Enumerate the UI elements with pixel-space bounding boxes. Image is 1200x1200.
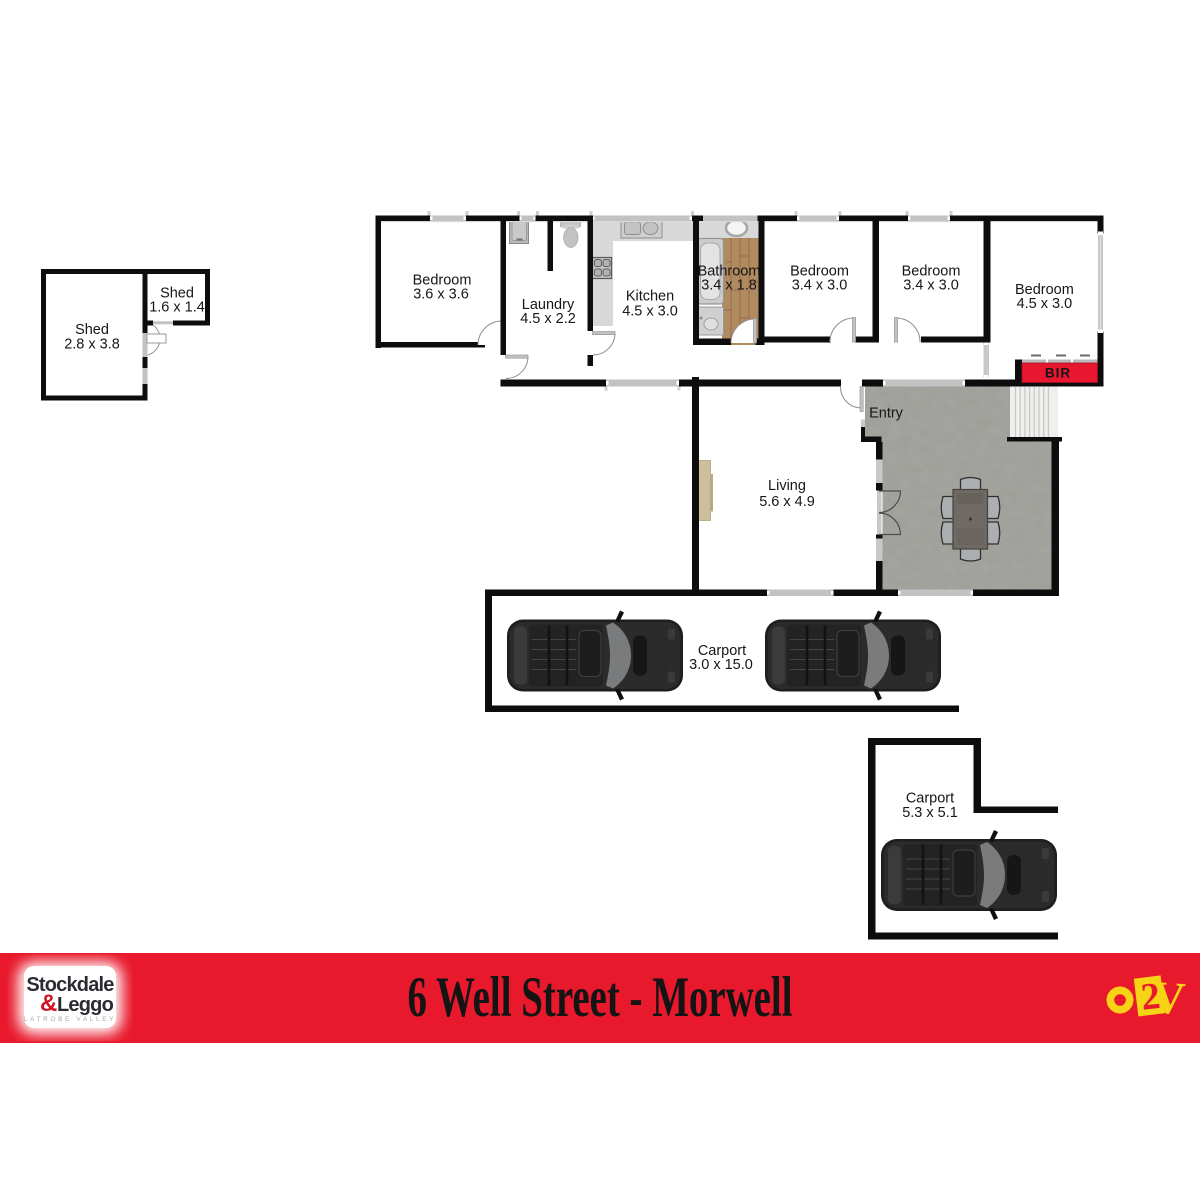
svg-text:3.4 x 3.0: 3.4 x 3.0	[903, 278, 959, 294]
svg-text:3.4 x 3.0: 3.4 x 3.0	[792, 278, 848, 294]
svg-text:&: &	[40, 990, 57, 1017]
svg-text:Living: Living	[768, 478, 806, 494]
svg-text:4.5 x 3.0: 4.5 x 3.0	[1017, 296, 1073, 312]
svg-text:BIR: BIR	[1045, 366, 1071, 381]
svg-text:Kitchen: Kitchen	[626, 289, 674, 305]
svg-text:3.0 x 15.0: 3.0 x 15.0	[689, 657, 753, 673]
svg-text:5.3 x 5.1: 5.3 x 5.1	[902, 805, 958, 821]
svg-text:V: V	[1150, 971, 1187, 1024]
svg-text:3.6 x 3.6: 3.6 x 3.6	[413, 287, 469, 303]
svg-text:4.5 x 2.2: 4.5 x 2.2	[520, 311, 576, 327]
svg-text:Leggo: Leggo	[57, 994, 114, 1016]
svg-text:LATROBE VALLEY: LATROBE VALLEY	[24, 1016, 116, 1023]
svg-text:Entry: Entry	[869, 406, 904, 422]
svg-text:1.6 x 1.4: 1.6 x 1.4	[149, 300, 205, 316]
svg-text:6 Well Street - Morwell: 6 Well Street - Morwell	[408, 966, 793, 1029]
svg-text:4.5 x 3.0: 4.5 x 3.0	[622, 304, 678, 320]
svg-text:5.6 x 4.9: 5.6 x 4.9	[759, 494, 815, 510]
svg-text:3.4 x 1.8: 3.4 x 1.8	[701, 278, 757, 294]
svg-text:2.8 x 3.8: 2.8 x 3.8	[64, 337, 120, 353]
